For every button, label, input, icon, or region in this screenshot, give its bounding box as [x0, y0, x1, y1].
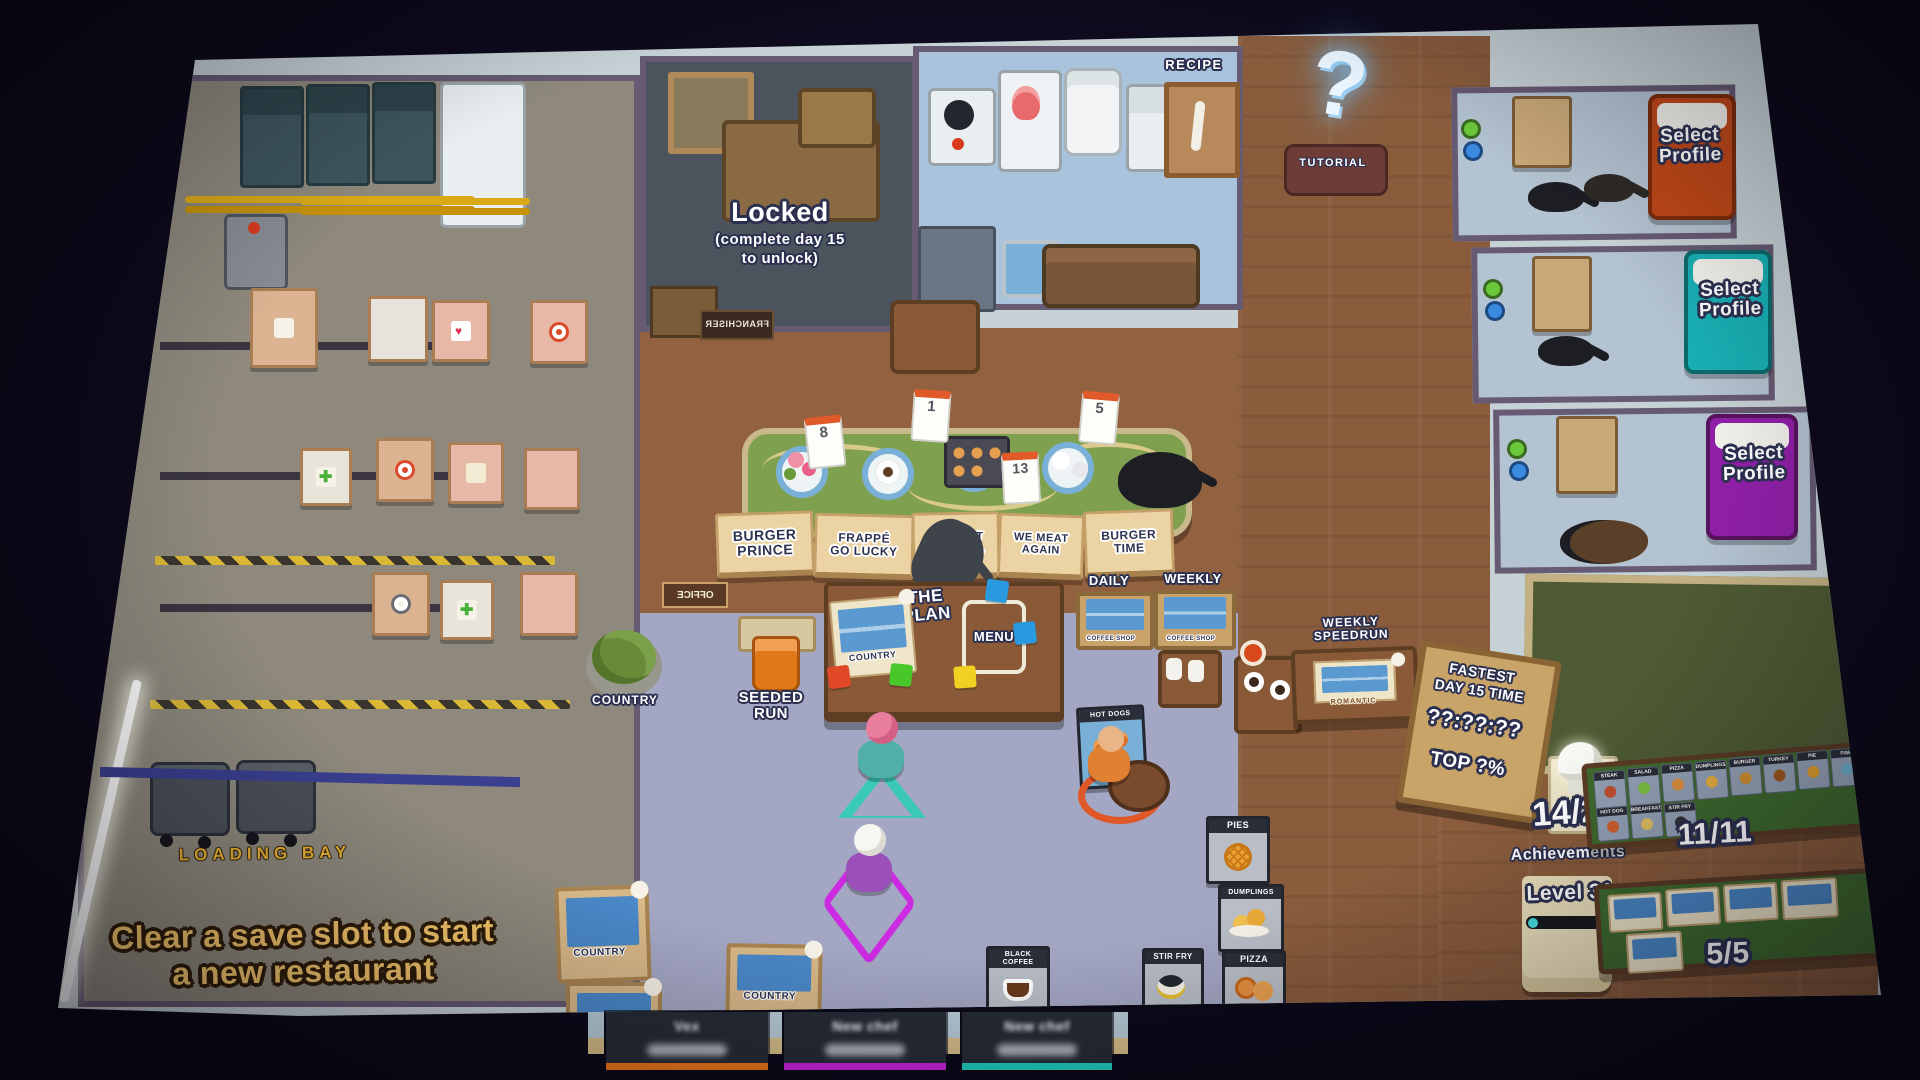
- dish-card: BURGER: [1728, 756, 1763, 796]
- hazard-tape: [150, 700, 570, 709]
- dish-icon: [1672, 778, 1685, 791]
- dish-card: PIE: [1796, 750, 1831, 790]
- heart-icon: ♥: [451, 321, 471, 341]
- blueprint-map: [1613, 898, 1656, 920]
- stock-pot[interactable]: [1064, 68, 1122, 156]
- storage-crate: [368, 296, 428, 362]
- button-blue[interactable]: [1466, 144, 1480, 158]
- weekly-label: WEEKLY: [1152, 572, 1234, 586]
- wall-tab: [1112, 1012, 1128, 1038]
- coffee-cup-icon: [1003, 979, 1033, 1001]
- pies-poster-label: PIES: [1209, 819, 1267, 833]
- recipe-frame[interactable]: [1164, 82, 1240, 178]
- burger-machine: [944, 436, 1010, 488]
- layout-count: 5/5: [1687, 937, 1768, 972]
- calendar-day: 1: [927, 398, 937, 416]
- dish-card: FISH: [1830, 747, 1865, 787]
- fastest-time: ??:??:??: [1414, 704, 1534, 744]
- blueprint-card: [1626, 931, 1684, 974]
- bedroom-dog: [1560, 520, 1648, 564]
- coffee-cup: [876, 460, 900, 484]
- button-blue[interactable]: [1488, 304, 1502, 318]
- dish-card: TURKEY: [1762, 753, 1797, 793]
- locked-subtitle-line1: (complete day 15: [690, 232, 870, 248]
- hot-dogs-poster-label: HOT DOGS: [1079, 707, 1142, 722]
- dish-card: STEAK: [1593, 770, 1628, 810]
- calendar-card: 5: [1078, 390, 1120, 445]
- trolley-wheel: [160, 834, 173, 847]
- stir-fry-poster: STIR FRY: [1142, 948, 1204, 1010]
- daily-label: DAILY: [1074, 574, 1144, 588]
- target-icon: [549, 322, 569, 342]
- vacuum-button: [248, 222, 260, 234]
- player-color-bar: [784, 1063, 946, 1070]
- chef-hat: [854, 824, 886, 856]
- button-green[interactable]: [1464, 122, 1478, 136]
- player-name: Vex: [606, 1019, 768, 1034]
- flower-deco: [804, 941, 822, 959]
- franchise-plaque-label: FRANCHISER: [705, 320, 769, 330]
- chef-white-hat: [846, 852, 892, 892]
- figure-icon: [274, 318, 294, 338]
- flower-deco: [630, 880, 649, 899]
- meat-fridge[interactable]: [998, 70, 1062, 172]
- recipe-scroll-glyph: [1190, 101, 1205, 152]
- wardrobe: [1556, 416, 1618, 494]
- locked-subtitle-line2: to unlock): [690, 251, 870, 267]
- storage-crate: ✚: [300, 448, 352, 506]
- country-table-label: COUNTRY: [730, 991, 810, 1003]
- weekly-blueprint: [1164, 597, 1226, 629]
- blueprint-map: [1632, 937, 1677, 961]
- blueprint-card: [1723, 882, 1779, 923]
- wardrobe: [1512, 96, 1572, 168]
- dinner-plate: [1072, 462, 1088, 478]
- dish-icon: [1807, 765, 1820, 778]
- level-progress-dot: [1528, 918, 1538, 928]
- chef-pink: [858, 740, 904, 778]
- country-table-1[interactable]: COUNTRY: [554, 884, 651, 983]
- hob-knob: [952, 138, 964, 150]
- dish-icon: [1638, 782, 1651, 795]
- country-table-3[interactable]: COUNTRY: [725, 943, 822, 1023]
- dish-card: HOT DOG: [1596, 806, 1631, 842]
- black-coffee-poster: BLACKCOFFEE: [986, 946, 1050, 1012]
- dumpling-plate: [1229, 925, 1269, 937]
- bedroom-pet: [1584, 174, 1634, 202]
- storage-crate: [448, 442, 504, 504]
- sticky-note-blue: [985, 579, 1010, 604]
- country-table-map: [737, 954, 812, 992]
- chef-orange-head: [1098, 726, 1124, 752]
- office-plaque-label: OFFICE: [677, 590, 714, 601]
- calendar-day: 8: [819, 424, 830, 442]
- wardrobe: [1532, 256, 1592, 332]
- seeded-run-label: SEEDEDRUN: [716, 690, 826, 722]
- trolley-wheel: [246, 832, 259, 845]
- button-green[interactable]: [1486, 282, 1500, 296]
- dish-icon: [1604, 785, 1617, 798]
- grill-machine: [372, 82, 436, 184]
- player-chip-1: Vex: [606, 1012, 768, 1070]
- recipe-sign[interactable]: RECIPE: [1156, 58, 1232, 72]
- clear-save-hint: Clear a save slot to starta new restaura…: [47, 911, 558, 995]
- hazard-tape: [155, 556, 555, 565]
- speedrun-title: WEEKLYSPEEDRUN: [1290, 614, 1413, 644]
- sticky-note-red: [827, 665, 852, 690]
- eggs-icon: [466, 463, 486, 483]
- player-color-bar: [962, 1063, 1112, 1070]
- player-platform-id: [825, 1044, 905, 1056]
- player-chip-3: New chef: [962, 1012, 1112, 1070]
- map-blueprint: [838, 605, 907, 653]
- calendar-card: 13: [1001, 451, 1042, 505]
- storage-crate: [530, 300, 588, 364]
- blueprint-map: [1787, 883, 1832, 907]
- flower-deco: [644, 978, 662, 996]
- sticky-note-yellow: [953, 665, 976, 688]
- save-slot-sign-1[interactable]: BURGERPRINCE: [715, 510, 815, 578]
- storage-crate: ♥: [432, 300, 490, 362]
- calendar-card: 8: [803, 414, 846, 470]
- dumplings-poster: DUMPLINGS: [1218, 884, 1284, 952]
- player-platform-id: [647, 1044, 727, 1056]
- grill-machine: [240, 86, 304, 188]
- select-profile-3[interactable]: SelectProfile: [1695, 442, 1812, 486]
- dish-icon: [1705, 775, 1718, 788]
- blueprint-map: [1729, 887, 1772, 909]
- button-green[interactable]: [1510, 442, 1524, 456]
- calendar-day: 13: [1012, 460, 1029, 477]
- pizza-poster: PIZZA: [1222, 950, 1286, 1012]
- tutorial-mat[interactable]: [1284, 144, 1388, 196]
- locked-title: Locked: [690, 198, 870, 227]
- player-platform-id: [997, 1044, 1077, 1056]
- coffee-cup: [1244, 672, 1264, 692]
- dinner-plate: [1052, 452, 1070, 470]
- target-icon: [395, 460, 415, 480]
- player-name: New chef: [784, 1019, 946, 1034]
- save-slot-sign-2[interactable]: FRAPPÉGO LUCKY: [813, 513, 915, 581]
- speedrun-card-label: ROMANTIC: [1312, 697, 1394, 707]
- save-slot-sign-4[interactable]: WE MEATAGAIN: [997, 513, 1085, 581]
- storage-crate: ✚: [440, 580, 494, 640]
- storage-crate: [250, 288, 318, 368]
- tomato-plate: [1240, 640, 1266, 666]
- storage-crate: [376, 438, 434, 502]
- select-profile-1[interactable]: SelectProfile: [1631, 124, 1748, 168]
- wooden-truck-cab: [798, 88, 876, 148]
- plus-icon: ✚: [316, 467, 336, 487]
- fastest-rank: TOP ?%: [1408, 746, 1528, 784]
- dish-icon: [1773, 769, 1786, 782]
- tutorial-label: TUTORIAL: [1284, 158, 1382, 170]
- office-plaque: OFFICE: [662, 582, 728, 608]
- blueprint-card: [1781, 877, 1839, 920]
- black-coffee-poster-label: BLACKCOFFEE: [989, 949, 1047, 968]
- player-name: New chef: [962, 1019, 1112, 1034]
- counter-white: [440, 82, 526, 228]
- bedroom-pet: [1538, 336, 1594, 366]
- grill-machine: [306, 84, 370, 186]
- pizza-icon: [1253, 981, 1273, 1001]
- pizza-poster-label: PIZZA: [1225, 953, 1283, 967]
- speedrun-blueprint: [1322, 665, 1388, 694]
- dish-icon: [1841, 763, 1854, 776]
- save-slot-name: BURGERPRINCE: [733, 527, 798, 559]
- meat-icon: [1012, 86, 1040, 120]
- sofa: [1042, 244, 1200, 308]
- dish-card: SALAD: [1627, 766, 1662, 806]
- weekly-board[interactable]: COFFEE SHOP: [1154, 590, 1236, 650]
- calendar-day: 5: [1095, 400, 1105, 418]
- franchise-door-plaque[interactable]: FRANCHISER: [700, 310, 774, 340]
- black-cat: [1118, 452, 1202, 508]
- wall-tab: [944, 1038, 960, 1054]
- dish-card: DUMPLINGS: [1694, 760, 1729, 800]
- country-plant[interactable]: [592, 630, 656, 684]
- coffee-cup: [1270, 680, 1290, 700]
- menu-label: MENU: [974, 630, 1014, 644]
- pie-icon: [1224, 843, 1252, 871]
- country-table-map: [566, 896, 640, 948]
- wall-tab: [588, 1012, 604, 1038]
- wall-tab: [766, 1012, 782, 1038]
- wall-tab: [944, 1012, 960, 1038]
- wall-tab: [588, 1038, 604, 1054]
- dish-icon: [1739, 772, 1752, 785]
- wall-tab: [1112, 1038, 1128, 1054]
- chef-pink-hair: [866, 712, 898, 744]
- player-chip-2: New chef: [784, 1012, 946, 1070]
- seeded-run-bin[interactable]: [752, 636, 800, 692]
- milk-jug: [1166, 658, 1182, 680]
- plus-icon: ✚: [457, 600, 477, 620]
- hob-burner: [944, 100, 974, 130]
- queue-railing: [300, 198, 530, 205]
- daily-blueprint: [1086, 599, 1145, 630]
- dish-count: 11/11: [1659, 815, 1771, 853]
- pies-poster: PIES: [1206, 816, 1270, 884]
- dish-icon: [1641, 818, 1654, 831]
- dish-icon: [1607, 820, 1620, 833]
- tutorial-question-mark: ?: [1287, 30, 1391, 140]
- weekly-card-label: COFFEE SHOP: [1158, 636, 1224, 642]
- storage-crate: [520, 572, 578, 636]
- sticky-note-green: [889, 663, 913, 687]
- daily-card-label: COFFEE SHOP: [1080, 636, 1142, 642]
- bedroom-pet: [1528, 182, 1584, 212]
- milk-jug: [1188, 660, 1204, 682]
- sticky-note-blue: [1013, 621, 1037, 645]
- storage-crate: [524, 448, 580, 510]
- spiral-icon: [391, 594, 411, 614]
- player-color-bar: [606, 1063, 768, 1070]
- player-marker-teal-inner: [852, 778, 912, 816]
- blueprint-map: [1671, 892, 1714, 914]
- dumplings-poster-label: DUMPLINGS: [1221, 887, 1281, 899]
- loading-room: [78, 75, 640, 1007]
- wall-tab: [766, 1038, 782, 1054]
- country-plant-label: COUNTRY: [580, 694, 670, 707]
- blueprint-card: [1607, 892, 1663, 933]
- speedrun-board[interactable]: ROMANTIC: [1291, 646, 1420, 724]
- stir-fry-poster-label: STIR FRY: [1145, 951, 1201, 964]
- save-slot-sign-5[interactable]: BURGERTIME: [1083, 508, 1175, 578]
- plateup-lobby-scene: ♥ ✚ ✚ LOADING BAY Locked (complete day 1…: [0, 0, 1920, 1080]
- save-slot-name: WE MEATAGAIN: [1013, 532, 1068, 557]
- dining-table: [890, 300, 980, 374]
- select-profile-2[interactable]: SelectProfile: [1671, 278, 1788, 322]
- blueprint-card: [1665, 886, 1721, 927]
- wok-icon: [1157, 975, 1185, 999]
- storage-crate: [372, 572, 430, 636]
- flower-deco: [1391, 652, 1405, 666]
- dish-card: PIZZA: [1660, 762, 1695, 802]
- save-slot-name: BURGERTIME: [1101, 528, 1157, 555]
- flower-leaf: [784, 468, 796, 480]
- country-table-label: COUNTRY: [561, 947, 639, 960]
- save-slot-name: FRAPPÉGO LUCKY: [830, 531, 898, 558]
- button-blue[interactable]: [1512, 464, 1526, 478]
- daily-board[interactable]: COFFEE SHOP: [1076, 592, 1154, 650]
- calendar-card: 1: [910, 389, 952, 444]
